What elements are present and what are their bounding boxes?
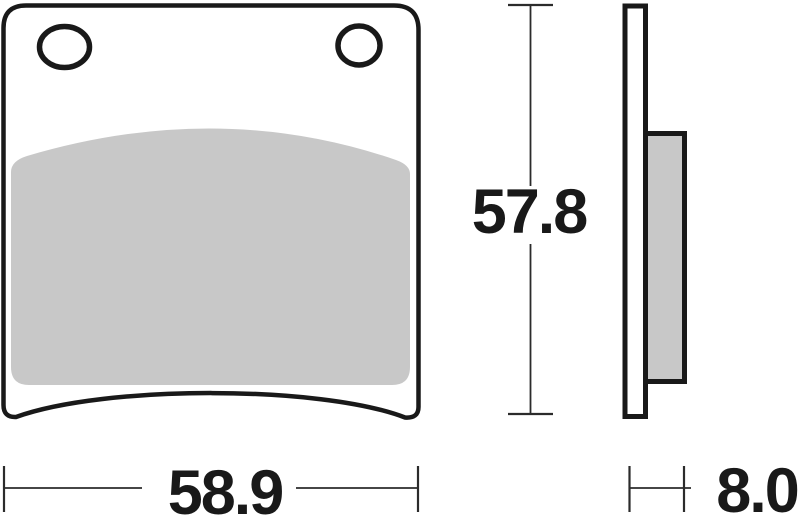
mounting-hole-right-icon (338, 26, 380, 65)
technical-drawing-canvas: 57.8 58.9 8.0 (0, 0, 800, 516)
backing-plate-side (625, 6, 646, 417)
dim-width-label: 58.9 (168, 458, 283, 516)
brake-pad-drawing: 57.8 58.9 8.0 (0, 0, 800, 516)
dim-thickness (630, 466, 692, 512)
dim-thickness-label: 8.0 (716, 456, 798, 516)
pad-side-view (625, 6, 685, 417)
dim-height-label: 57.8 (472, 177, 588, 247)
friction-block-side (646, 134, 685, 382)
pad-front-view (4, 6, 419, 418)
mounting-hole-left-icon (40, 27, 90, 68)
friction-surface (11, 128, 410, 385)
